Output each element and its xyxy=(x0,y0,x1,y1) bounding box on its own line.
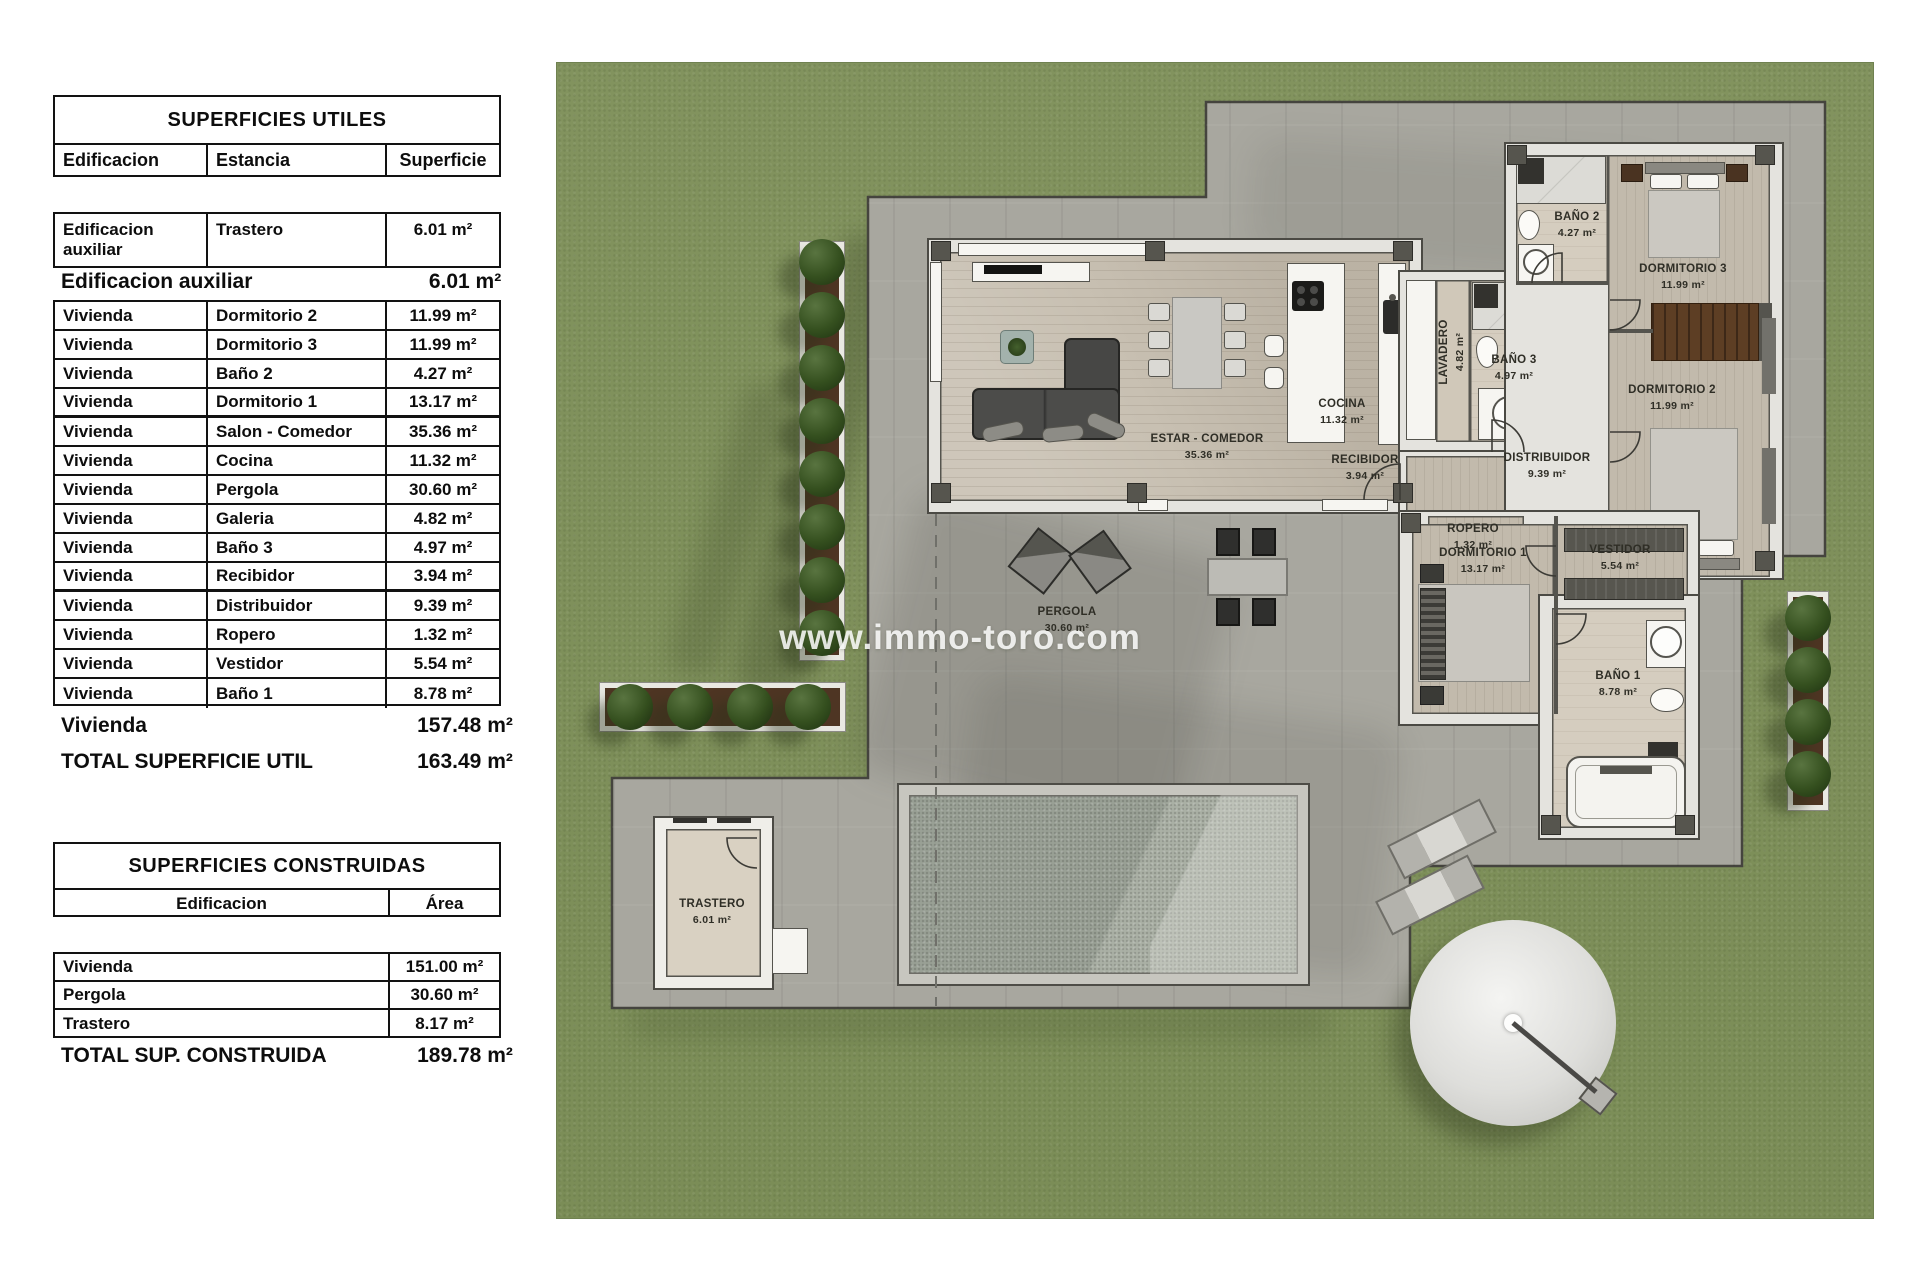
room-label-bano3: BAÑO 34.97 m² xyxy=(1491,353,1536,383)
room-label-dorm2: DORMITORIO 211.99 m² xyxy=(1628,383,1716,413)
room-label-recibidor: RECIBIDOR3.94 m² xyxy=(1331,453,1398,483)
room-label-vestidor: VESTIDOR5.54 m² xyxy=(1589,543,1650,573)
room-label-pergola: PERGOLA30.60 m² xyxy=(1038,605,1097,635)
room-label-dorm3: DORMITORIO 311.99 m² xyxy=(1639,262,1727,292)
room-label-bano1: BAÑO 18.78 m² xyxy=(1595,669,1640,699)
room-label-cocina: COCINA11.32 m² xyxy=(1318,397,1365,427)
room-label-bano2: BAÑO 24.27 m² xyxy=(1554,210,1599,240)
room-label-dorm1: DORMITORIO 113.17 m² xyxy=(1439,546,1527,576)
floorplan-page: SUPERFICIES UTILES Edificacion Estancia … xyxy=(0,0,1920,1280)
room-label-trastero: TRASTERO6.01 m² xyxy=(679,897,745,927)
room-label-estar: ESTAR - COMEDOR35.36 m² xyxy=(1151,432,1264,462)
room-label-lavadero: LAVADERO4.82 m² xyxy=(1437,319,1467,384)
room-label-distribuidor: DISTRIBUIDOR9.39 m² xyxy=(1504,451,1591,481)
dish-arm xyxy=(1513,1023,1596,1092)
